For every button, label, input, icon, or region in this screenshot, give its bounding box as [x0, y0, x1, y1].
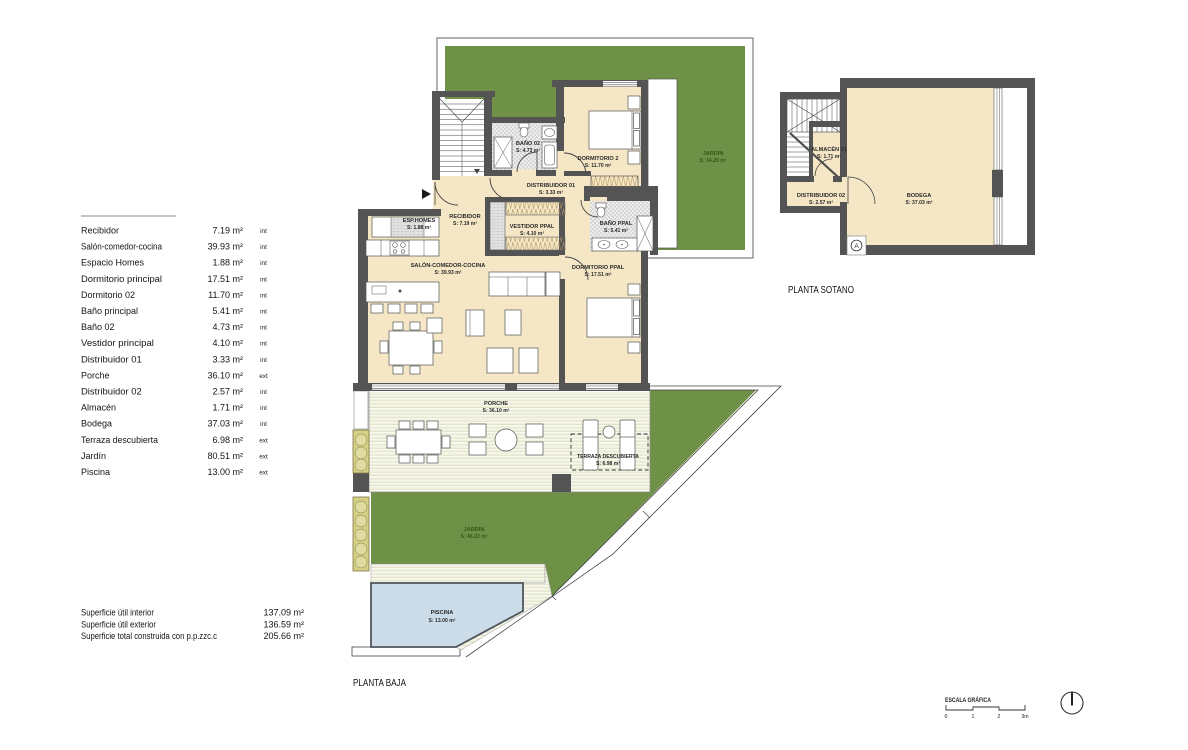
svg-text:BODEGA: BODEGA: [907, 193, 932, 199]
svg-text:6.98 m²: 6.98 m²: [212, 435, 243, 445]
svg-text:Terraza descubierta: Terraza descubierta: [81, 435, 158, 445]
svg-text:int: int: [260, 244, 267, 251]
svg-text:VESTIDOR PPAL: VESTIDOR PPAL: [510, 224, 555, 230]
svg-text:ext: ext: [259, 373, 268, 380]
svg-text:BAÑO PPAL: BAÑO PPAL: [600, 220, 633, 227]
svg-text:PLANTA BAJA: PLANTA BAJA: [353, 678, 406, 689]
svg-text:136.59 m²: 136.59 m²: [263, 619, 304, 629]
svg-text:Superficie útil interior: Superficie útil interior: [81, 608, 154, 618]
svg-text:Espacio Homes: Espacio Homes: [81, 258, 145, 268]
svg-text:2: 2: [998, 714, 1001, 720]
svg-text:int: int: [260, 389, 267, 396]
svg-text:S: 46.22 m²: S: 46.22 m²: [461, 534, 488, 540]
svg-text:int: int: [260, 228, 267, 235]
svg-text:ESCALA GRÁFICA: ESCALA GRÁFICA: [945, 695, 991, 704]
svg-text:ALMACÉN 01: ALMACÉN 01: [811, 145, 847, 153]
svg-text:S: 5.41 m²: S: 5.41 m²: [604, 228, 628, 234]
svg-text:S: 37.03 m²: S: 37.03 m²: [906, 200, 933, 206]
svg-text:1.71 m²: 1.71 m²: [212, 403, 243, 413]
svg-text:SALÓN-COMEDOR-COCINA: SALÓN-COMEDOR-COCINA: [411, 261, 486, 269]
svg-text:S: 2.57 m²: S: 2.57 m²: [809, 200, 833, 206]
svg-text:int: int: [260, 309, 267, 316]
svg-text:PISCINA: PISCINA: [431, 610, 454, 616]
svg-text:S: 13.00 m²: S: 13.00 m²: [429, 618, 456, 624]
svg-text:DORMITORIO PPAL: DORMITORIO PPAL: [572, 265, 625, 271]
svg-text:36.10 m²: 36.10 m²: [207, 370, 243, 380]
svg-text:Superficie total construida co: Superficie total construida con p.p.zzc.…: [81, 631, 217, 641]
svg-text:37.03 m²: 37.03 m²: [207, 419, 243, 429]
svg-text:Dormitorio 02: Dormitorio 02: [81, 290, 135, 300]
svg-text:80.51 m²: 80.51 m²: [207, 451, 243, 461]
svg-text:Almacén: Almacén: [81, 403, 116, 413]
svg-text:Distribuidor 01: Distribuidor 01: [81, 354, 142, 364]
svg-text:3.33 m²: 3.33 m²: [212, 354, 243, 364]
svg-text:17.51 m²: 17.51 m²: [207, 274, 243, 284]
svg-text:1.88 m²: 1.88 m²: [212, 258, 243, 268]
svg-text:PORCHE: PORCHE: [484, 401, 508, 407]
svg-text:Superficie útil exterior: Superficie útil exterior: [81, 619, 156, 629]
svg-text:5.41 m²: 5.41 m²: [212, 306, 243, 316]
svg-text:int: int: [260, 341, 267, 348]
svg-text:TERRAZA DESCUBIERTA: TERRAZA DESCUBIERTA: [577, 454, 639, 460]
svg-text:2.57 m²: 2.57 m²: [212, 387, 243, 397]
svg-text:ESP.HOMES: ESP.HOMES: [403, 218, 436, 224]
svg-text:Baño principal: Baño principal: [81, 306, 138, 316]
svg-text:S: 17.51 m²: S: 17.51 m²: [585, 272, 612, 278]
svg-text:JARDÍN: JARDÍN: [703, 149, 724, 157]
svg-text:Bodega: Bodega: [81, 419, 112, 429]
svg-text:ext: ext: [259, 470, 268, 477]
svg-text:Porche: Porche: [81, 370, 110, 380]
svg-text:Jardín: Jardín: [81, 451, 106, 461]
svg-text:PLANTA SOTANO: PLANTA SOTANO: [788, 285, 854, 296]
svg-text:0: 0: [945, 714, 948, 720]
svg-text:S: 7.19 m²: S: 7.19 m²: [453, 221, 477, 227]
svg-text:1: 1: [972, 714, 975, 720]
svg-text:ext: ext: [259, 437, 268, 444]
svg-text:DISTRIBUIDOR 02: DISTRIBUIDOR 02: [797, 193, 845, 199]
svg-text:S: 6.98 m²: S: 6.98 m²: [596, 461, 620, 467]
svg-text:S: 34.29 m²: S: 34.29 m²: [700, 158, 727, 164]
svg-text:S: 4.10 m²: S: 4.10 m²: [520, 231, 544, 237]
svg-text:A: A: [854, 243, 859, 250]
svg-text:S: 1.71 m²: S: 1.71 m²: [817, 154, 841, 160]
svg-text:int: int: [260, 325, 267, 332]
svg-text:S: 4.73 m²: S: 4.73 m²: [516, 148, 540, 154]
svg-text:ext: ext: [259, 453, 268, 460]
svg-text:Vestidor principal: Vestidor principal: [81, 338, 154, 348]
svg-text:int: int: [260, 421, 267, 428]
svg-text:RECIBIDOR: RECIBIDOR: [449, 214, 480, 220]
svg-text:S: 1.88 m²: S: 1.88 m²: [407, 225, 431, 231]
svg-text:int: int: [260, 276, 267, 283]
svg-text:39.93 m²: 39.93 m²: [207, 242, 243, 252]
svg-text:Piscina: Piscina: [81, 467, 110, 477]
svg-text:JARDÍN: JARDÍN: [464, 525, 485, 533]
svg-text:int: int: [260, 357, 267, 364]
svg-text:11.70 m²: 11.70 m²: [208, 290, 243, 300]
svg-text:Distribuidor 02: Distribuidor 02: [81, 387, 142, 397]
svg-text:205.66 m²: 205.66 m²: [263, 631, 304, 641]
svg-text:Dormitorio principal: Dormitorio principal: [81, 274, 162, 284]
svg-text:DISTRIBUIDOR 01: DISTRIBUIDOR 01: [527, 183, 575, 189]
svg-text:S: 39.93 m²: S: 39.93 m²: [435, 270, 462, 276]
svg-text:3m: 3m: [1021, 714, 1028, 720]
svg-text:Recibidor: Recibidor: [81, 226, 119, 236]
svg-text:S: 3.33 m²: S: 3.33 m²: [539, 190, 563, 196]
svg-text:4.10 m²: 4.10 m²: [212, 338, 243, 348]
svg-text:4.73 m²: 4.73 m²: [212, 322, 243, 332]
svg-text:Salón-comedor-cocina: Salón-comedor-cocina: [81, 242, 162, 252]
svg-text:S: 36.10 m²: S: 36.10 m²: [483, 408, 510, 414]
svg-text:S: 11.70 m²: S: 11.70 m²: [585, 163, 612, 169]
svg-text:137.09 m²: 137.09 m²: [263, 608, 304, 618]
svg-text:BAÑO 02: BAÑO 02: [516, 140, 540, 147]
svg-text:DORMITORIO 2: DORMITORIO 2: [578, 156, 619, 162]
svg-text:int: int: [260, 405, 267, 412]
svg-text:Baño 02: Baño 02: [81, 322, 115, 332]
svg-text:int: int: [260, 260, 267, 267]
svg-text:int: int: [260, 292, 267, 299]
svg-text:7.19 m²: 7.19 m²: [212, 226, 243, 236]
svg-text:13.00 m²: 13.00 m²: [207, 467, 243, 477]
